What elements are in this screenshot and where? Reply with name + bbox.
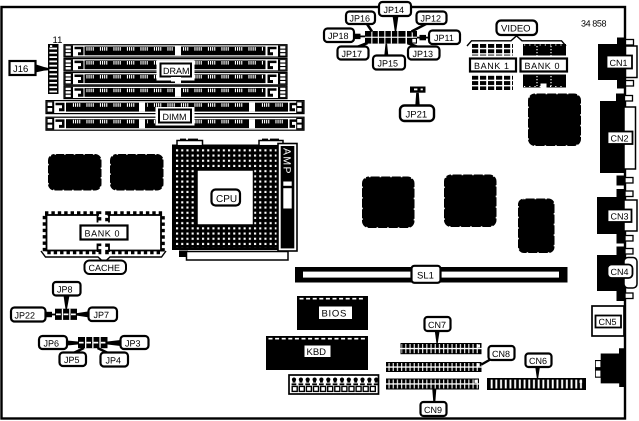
- svg-text:CN5: CN5: [599, 317, 617, 327]
- svg-text:JP15: JP15: [378, 58, 399, 68]
- svg-text:BIOS: BIOS: [322, 309, 348, 320]
- svg-text:BANK 0: BANK 0: [85, 228, 121, 238]
- svg-text:JP22: JP22: [15, 310, 36, 320]
- svg-text:J16: J16: [13, 64, 28, 75]
- svg-text:CN2: CN2: [611, 134, 629, 144]
- svg-text:JP17: JP17: [342, 49, 363, 59]
- svg-text:JP16: JP16: [350, 14, 371, 24]
- svg-text:JP18: JP18: [328, 31, 349, 41]
- svg-text:JP21: JP21: [406, 110, 428, 121]
- svg-text:CN7: CN7: [428, 320, 446, 330]
- svg-text:JP13: JP13: [413, 49, 434, 59]
- svg-text:JP4: JP4: [106, 356, 122, 366]
- svg-text:KBD: KBD: [307, 347, 327, 358]
- svg-text:34 858: 34 858: [581, 19, 607, 29]
- svg-text:BANK 0: BANK 0: [525, 61, 561, 71]
- svg-text:VIDEO: VIDEO: [501, 24, 531, 35]
- svg-text:AMP: AMP: [281, 148, 293, 175]
- svg-text:JP12: JP12: [421, 14, 442, 24]
- svg-text:CN1: CN1: [610, 58, 628, 68]
- svg-text:JP6: JP6: [44, 338, 60, 348]
- svg-text:CPU: CPU: [216, 194, 237, 205]
- svg-text:BANK 1: BANK 1: [474, 61, 510, 71]
- svg-text:CACHE: CACHE: [89, 263, 121, 273]
- svg-text:CN6: CN6: [529, 356, 547, 366]
- svg-text:JP14: JP14: [384, 5, 405, 15]
- svg-text:JP5: JP5: [64, 355, 80, 365]
- svg-text:CN9: CN9: [424, 405, 442, 415]
- svg-text:SL1: SL1: [417, 270, 434, 281]
- svg-text:CN8: CN8: [492, 349, 510, 359]
- svg-text:JP7: JP7: [94, 310, 110, 320]
- svg-text:JP11: JP11: [434, 33, 454, 43]
- svg-text:JP8: JP8: [57, 285, 73, 295]
- svg-text:JP3: JP3: [125, 338, 141, 348]
- svg-text:DRAM: DRAM: [163, 66, 190, 76]
- svg-text:CN3: CN3: [611, 212, 629, 222]
- svg-text:DIMM: DIMM: [163, 112, 187, 122]
- svg-text:CN4: CN4: [611, 267, 629, 277]
